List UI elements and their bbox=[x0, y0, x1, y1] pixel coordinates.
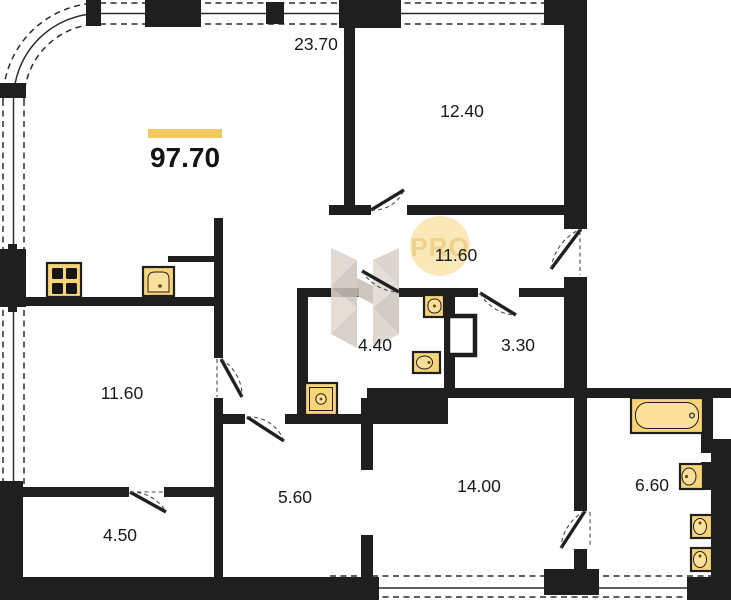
room-label-bedroom-left: 11.60 bbox=[101, 383, 144, 403]
watermark-h-logo bbox=[331, 248, 399, 348]
total-area: 97.70 bbox=[148, 129, 222, 173]
kitchen-sink-icon bbox=[143, 267, 174, 296]
room-label-bathroom: 4.40 bbox=[358, 335, 392, 355]
floor-plan: PRO bbox=[0, 0, 731, 600]
stove-icon bbox=[47, 263, 81, 297]
entrance-door bbox=[551, 229, 581, 275]
total-area-accent-bar bbox=[148, 129, 222, 138]
room-label-bedroom-top: 12.40 bbox=[440, 101, 484, 121]
washbasin-icon bbox=[680, 462, 713, 490]
total-area-label: 97.70 bbox=[150, 142, 220, 173]
door-bedroom-top bbox=[371, 190, 404, 210]
room-label-living-kitchen: 23.70 bbox=[294, 34, 338, 54]
room-label-hall-small: 5.60 bbox=[278, 487, 312, 507]
door-bedroom-left bbox=[217, 359, 242, 397]
door-hall-small bbox=[247, 417, 284, 441]
floor-plan-canvas: PRO bbox=[0, 0, 731, 600]
room-label-bedroom-bottom: 14.00 bbox=[457, 476, 501, 496]
washbasin-icon bbox=[413, 352, 440, 373]
door-wc bbox=[480, 293, 516, 315]
room-label-wc: 3.30 bbox=[501, 335, 535, 355]
bathtub-icon bbox=[631, 398, 703, 433]
room-label-storage: 4.50 bbox=[103, 525, 137, 545]
door-storage bbox=[130, 492, 166, 512]
duct-shaft-icon bbox=[448, 316, 475, 355]
toilet-icon bbox=[691, 548, 712, 571]
toilet-icon bbox=[691, 515, 712, 538]
door-bathroom-ensuite bbox=[561, 511, 590, 548]
toilet-icon bbox=[424, 295, 444, 317]
room-label-hallway: 11.60 bbox=[435, 245, 478, 265]
washing-machine-icon bbox=[305, 383, 337, 415]
room-label-bathroom-ensuite: 6.60 bbox=[635, 475, 669, 495]
